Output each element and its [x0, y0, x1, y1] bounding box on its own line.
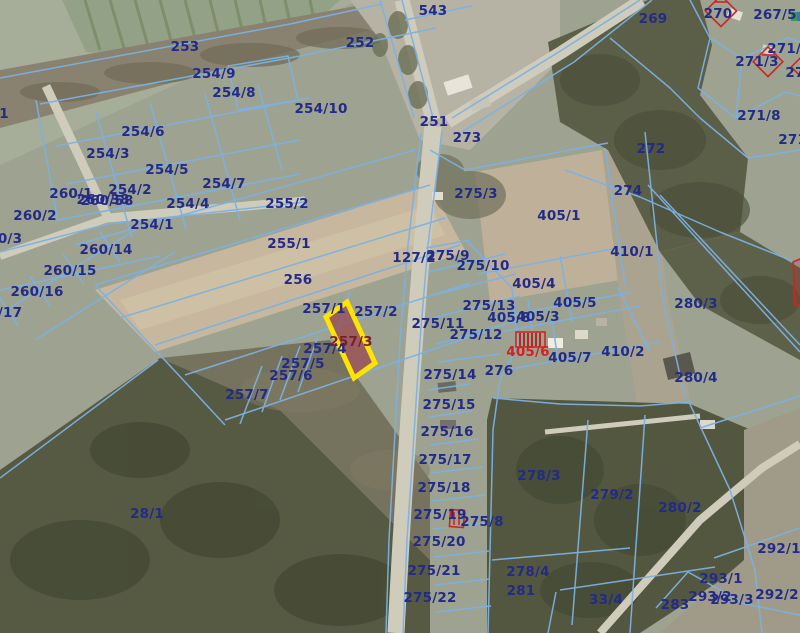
- parcel-label: 269: [639, 11, 668, 27]
- parcel-label: 274: [614, 183, 643, 199]
- parcel-label: 260/15: [43, 263, 96, 279]
- parcel-label: 33/4: [589, 592, 623, 608]
- parcel-label: 405/1: [537, 208, 581, 224]
- parcel-label: 271/8: [737, 108, 781, 124]
- parcel-label: 254/1: [130, 217, 174, 233]
- parcel-label: 280/4: [674, 370, 718, 386]
- parcel-label: 254/3: [86, 146, 130, 162]
- parcel-label: 405/7: [548, 350, 592, 366]
- parcel-label: 292/1: [757, 541, 800, 557]
- parcel-label: 252: [346, 35, 375, 51]
- red-parcel-edge: [793, 254, 800, 306]
- parcel-label: 275/10: [456, 258, 509, 274]
- parcel-label: 272: [637, 141, 666, 157]
- parcel-label: 543: [419, 3, 448, 19]
- cadastral-map[interactable]: 543253252269270267/5254/9254/8254/102512…: [0, 0, 800, 633]
- parcel-label: 281: [507, 583, 536, 599]
- parcel-label: 275/8: [460, 514, 504, 530]
- parcel-label: 292/2: [755, 587, 799, 603]
- parcel-label: 254/4: [166, 196, 210, 212]
- aerial-basemap: [0, 0, 800, 633]
- parcel-label: 254/5: [145, 162, 189, 178]
- parcel-label: 405/4: [512, 276, 556, 292]
- parcel-label: 257/1: [302, 301, 346, 317]
- parcel-label: 257/6: [269, 368, 313, 384]
- parcel-label: 276: [485, 363, 514, 379]
- parcel-label: 1: [0, 106, 9, 122]
- parcel-label: 410/2: [601, 344, 645, 360]
- parcel-label: 405/3: [516, 309, 560, 325]
- parcel-label: 253: [171, 39, 200, 55]
- parcel-label: 275/17: [418, 452, 471, 468]
- parcel-label: 275/14: [423, 367, 476, 383]
- parcel-label: 275/19: [413, 507, 466, 523]
- parcel-label: 279/2: [590, 487, 634, 503]
- parcel-label: 275/20: [412, 534, 465, 550]
- parcel-label: 260/58: [80, 193, 133, 209]
- parcel-label: 255/2: [265, 196, 309, 212]
- parcel-label: 275/22: [403, 590, 456, 606]
- parcel-label: 293/3: [710, 592, 754, 608]
- parcel-label: 28/1: [130, 506, 164, 522]
- parcel-label: 254/7: [202, 176, 246, 192]
- parcel-label: /17: [0, 305, 22, 321]
- parcel-label: 260/2: [13, 208, 57, 224]
- parcel-label: 271/3: [735, 54, 779, 70]
- parcel-label: 275/3: [454, 186, 498, 202]
- parcel-label: 410/1: [610, 244, 654, 260]
- map-viewport[interactable]: 543253252269270267/5254/9254/8254/102512…: [0, 0, 800, 633]
- parcel-label: 254/8: [212, 85, 256, 101]
- parcel-label: 275/16: [420, 424, 473, 440]
- parcel-label: 278/4: [506, 564, 550, 580]
- parcel-label: 260/16: [10, 284, 63, 300]
- parcel-label: 254/10: [294, 101, 347, 117]
- parcel-label: 271/7: [778, 132, 800, 148]
- parcel-label: 254/9: [192, 66, 236, 82]
- parcel-label: 275/15: [422, 397, 475, 413]
- parcel-label: 275/18: [417, 480, 470, 496]
- parcel-label: 257/2: [354, 304, 398, 320]
- parcel-label: 267/5: [753, 7, 797, 23]
- parcel-label: 273: [453, 130, 482, 146]
- parcel-label: 283: [661, 597, 690, 613]
- parcel-label: 257/7: [225, 387, 269, 403]
- parcel-label: 280/2: [658, 500, 702, 516]
- parcel-label: 405/6: [506, 344, 550, 360]
- parcel-label: 293/1: [699, 571, 743, 587]
- parcel-label: 255/1: [267, 236, 311, 252]
- parcel-label: 27: [785, 65, 800, 81]
- parcel-label: 0/3: [0, 231, 22, 247]
- parcel-label: 254/6: [121, 124, 165, 140]
- parcel-label: 280/3: [674, 296, 718, 312]
- parcel-label: 260/14: [79, 242, 132, 258]
- parcel-label: 251: [420, 114, 449, 130]
- parcel-label: 270: [704, 6, 733, 22]
- parcel-label: 275/21: [407, 563, 460, 579]
- parcel-label: 405/5: [553, 295, 597, 311]
- parcel-label: 278/3: [517, 468, 561, 484]
- parcel-label: 256: [284, 272, 313, 288]
- parcel-label: 275/12: [449, 327, 502, 343]
- parcel-label: 257/4: [303, 341, 347, 357]
